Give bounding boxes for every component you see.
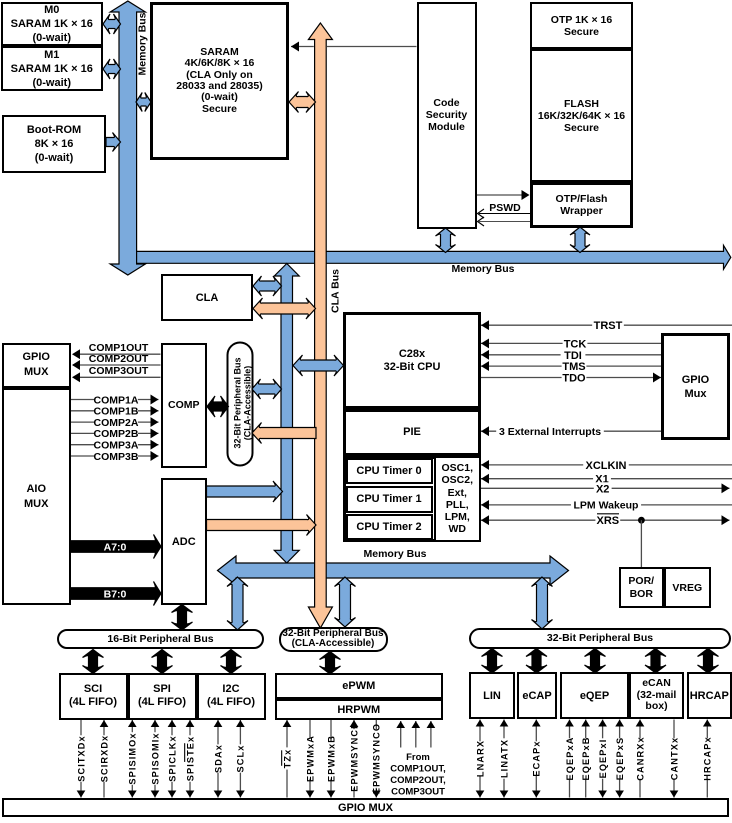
svg-text:COMP2B: COMP2B — [94, 428, 139, 440]
svg-text:B7:0: B7:0 — [104, 588, 127, 600]
svg-text:TZx: TZx — [282, 749, 292, 769]
svg-text:32-Bit Peripheral Bus: 32-Bit Peripheral Bus — [232, 357, 242, 448]
svg-text:Memory Bus: Memory Bus — [137, 12, 149, 75]
svg-text:COMP3A: COMP3A — [94, 439, 139, 451]
svg-text:A7:0: A7:0 — [104, 541, 127, 553]
svg-text:XCLKIN: XCLKIN — [586, 460, 627, 472]
svg-text:COMP1B: COMP1B — [94, 406, 139, 418]
svg-text:LNARX: LNARX — [475, 740, 485, 777]
svg-text:COMP2A: COMP2A — [94, 417, 139, 429]
svg-text:COMP3OUT: COMP3OUT — [89, 365, 149, 377]
svg-text:COMP1OUT,: COMP1OUT, — [390, 764, 445, 775]
svg-text:EQEPxS: EQEPxS — [615, 737, 625, 780]
svg-text:HRCAPx: HRCAPx — [703, 736, 713, 780]
svg-text:CLA Bus: CLA Bus — [330, 269, 342, 313]
svg-text:LINATX: LINATX — [499, 739, 509, 778]
svg-text:EQEPxI: EQEPxI — [598, 739, 608, 779]
svg-text:TDO: TDO — [562, 372, 586, 384]
svg-text:TMS: TMS — [562, 361, 585, 373]
svg-text:EPWMxB: EPWMxB — [326, 735, 336, 782]
svg-text:X2: X2 — [596, 483, 609, 495]
svg-text:SCLx: SCLx — [236, 745, 246, 773]
svg-text:TCK: TCK — [564, 338, 587, 350]
svg-text:COMP3OUT: COMP3OUT — [391, 787, 445, 798]
svg-text:COMP2OUT: COMP2OUT — [89, 353, 149, 365]
svg-text:COMP2OUT,: COMP2OUT, — [390, 775, 445, 786]
svg-text:TDI: TDI — [564, 350, 582, 362]
svg-text:CANTXx: CANTXx — [669, 737, 679, 780]
svg-text:SPISOMIx: SPISOMIx — [150, 732, 160, 784]
svg-text:SCIRXDx: SCIRXDx — [99, 735, 109, 783]
svg-text:SPISTEx: SPISTEx — [185, 736, 195, 782]
svg-text:SPICLKx: SPICLKx — [167, 735, 177, 782]
svg-text:Memory Bus: Memory Bus — [363, 548, 426, 560]
svg-text:EPWMxA: EPWMxA — [305, 735, 315, 782]
svg-text:ECAPx: ECAPx — [532, 740, 542, 776]
svg-text:EQEPxB: EQEPxB — [581, 737, 591, 781]
svg-text:XRS: XRS — [596, 515, 619, 527]
svg-text:(CLA-Accessible): (CLA-Accessible) — [243, 366, 253, 441]
svg-text:EPWMSYNCO: EPWMSYNCO — [372, 723, 382, 794]
svg-text:TRST: TRST — [594, 320, 623, 332]
svg-text:Memory Bus: Memory Bus — [451, 263, 514, 275]
svg-text:SPISIMOx: SPISIMOx — [128, 732, 138, 784]
svg-text:From: From — [406, 752, 430, 763]
svg-text:SCITXDx: SCITXDx — [76, 735, 86, 782]
svg-text:SDAx: SDAx — [213, 744, 223, 773]
svg-text:EQEPxA: EQEPxA — [565, 737, 575, 781]
svg-text:EPWMSYNCI: EPWMSYNCI — [349, 725, 359, 792]
svg-text:LPM Wakeup: LPM Wakeup — [574, 500, 639, 512]
svg-text:3 External Interrupts: 3 External Interrupts — [499, 426, 601, 438]
svg-text:COMP3B: COMP3B — [94, 451, 139, 463]
svg-text:COMP1A: COMP1A — [94, 394, 139, 406]
svg-text:CANRXx: CANRXx — [635, 736, 645, 780]
svg-text:PSWD: PSWD — [489, 202, 521, 214]
